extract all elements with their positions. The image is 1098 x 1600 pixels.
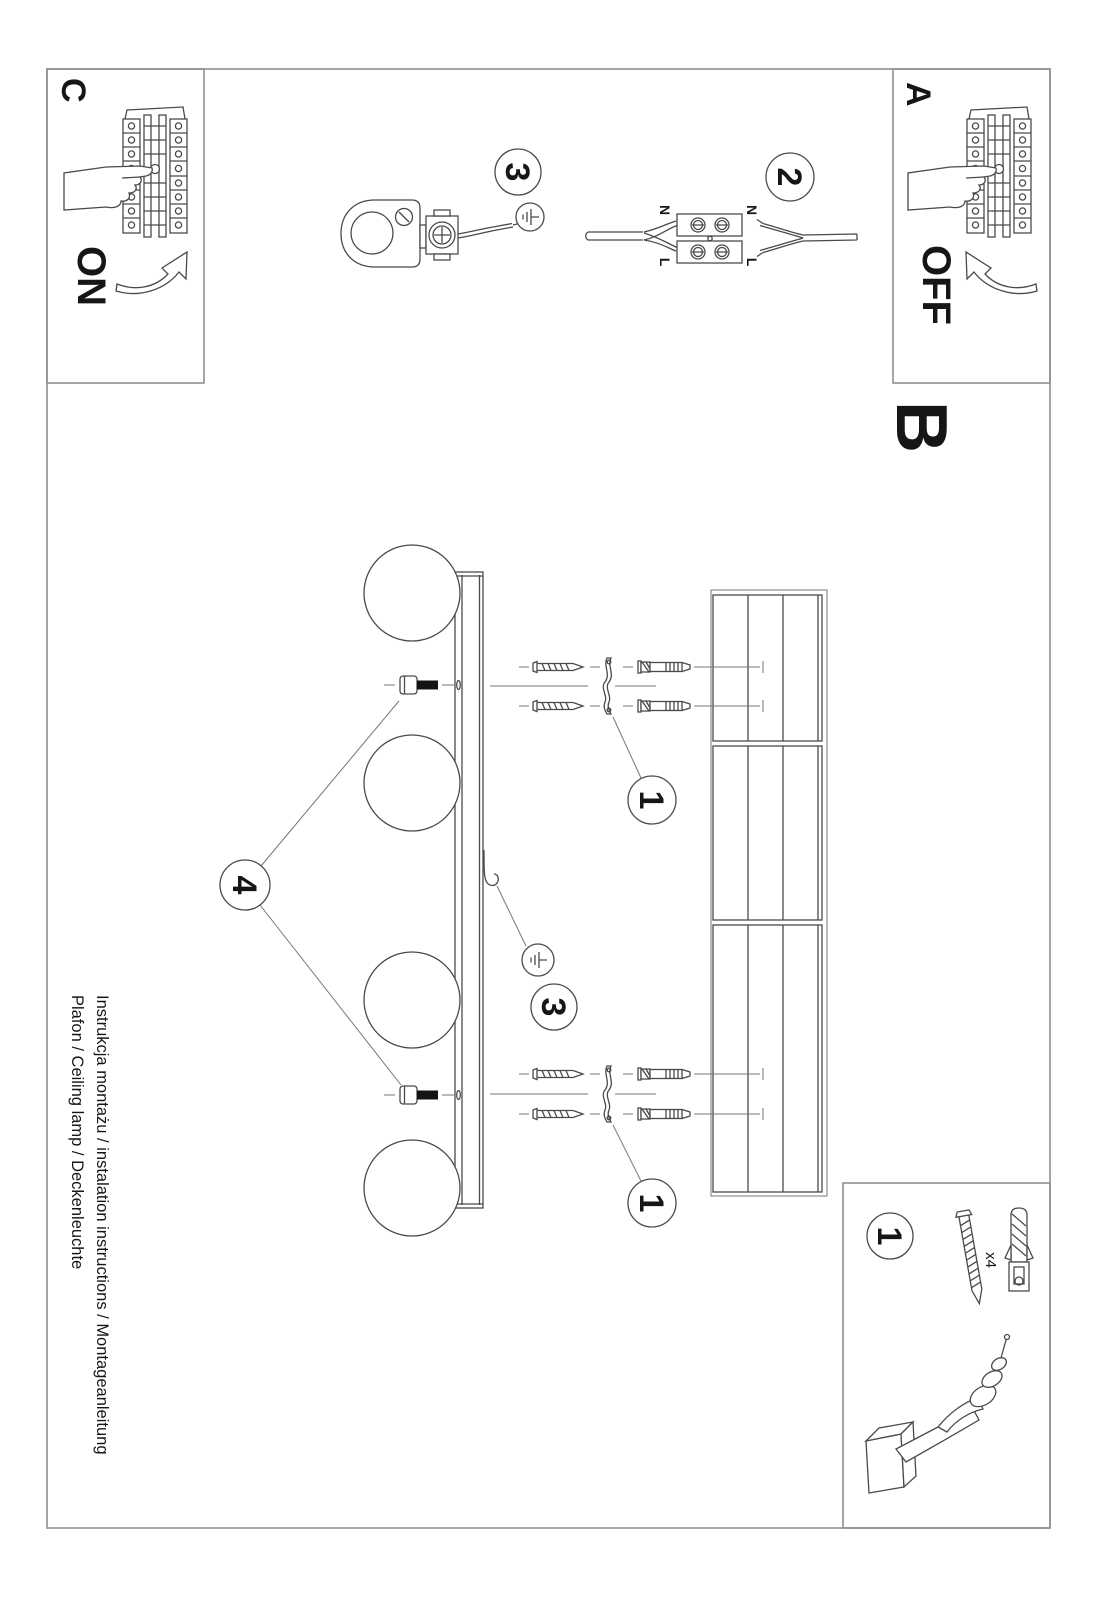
arrow-on-icon — [116, 252, 187, 294]
cable-right — [803, 234, 857, 241]
wire-n-left: N — [657, 205, 673, 215]
wood-screw-icon — [533, 1109, 583, 1120]
instruction-sheet: C A B ON OFF 2 3 3 4 1 1 1 N N L L x4 In… — [0, 0, 1098, 1600]
wire-l-right: L — [744, 258, 760, 267]
step3-number-top: 3 — [498, 163, 536, 182]
terminal-block-n — [677, 214, 742, 236]
step4-number: 4 — [225, 876, 263, 895]
ground-symbol-icon — [522, 944, 554, 976]
ground-symbol-icon — [516, 203, 544, 231]
arrow-off-icon — [966, 252, 1037, 294]
page-border — [47, 69, 1050, 1528]
screw-quantity-label: x4 — [982, 1252, 999, 1268]
tools-panel — [866, 1208, 1033, 1493]
ground-hook-icon — [484, 850, 498, 886]
wire-n-right: N — [744, 205, 760, 215]
cable-left — [586, 232, 643, 240]
globe-3 — [364, 952, 460, 1048]
wood-screw-icon — [533, 1069, 583, 1080]
step1-number-top: 1 — [632, 791, 670, 810]
drill-icon — [866, 1335, 1010, 1494]
wall-plug-icon — [638, 700, 690, 712]
center-lines — [384, 661, 763, 1120]
wall-plug-icon — [638, 1068, 690, 1080]
globe-2 — [364, 735, 460, 831]
wood-screw-icon — [533, 701, 583, 712]
wire-l-left: L — [657, 258, 673, 267]
ceiling-planks — [711, 590, 827, 1196]
terminal-block-l — [677, 241, 742, 263]
wall-plug-vertical-icon — [1005, 1208, 1033, 1291]
off-label: OFF — [914, 245, 958, 325]
globe-screw-icon — [400, 676, 438, 694]
step1-number-tools: 1 — [870, 1227, 908, 1246]
globe-screw-icon — [400, 1086, 438, 1104]
mounting-bracket-icon — [603, 658, 611, 714]
wood-screw-icon — [533, 662, 583, 673]
wall-plug-icon — [638, 661, 690, 673]
step2-terminal-wiring — [586, 153, 857, 263]
step1-number-bottom: 1 — [632, 1194, 670, 1213]
step2-number: 2 — [770, 168, 808, 187]
section-a-label: A — [899, 82, 937, 107]
document-title-line1: Instrukcja montażu / instalation instruc… — [93, 995, 111, 1455]
section-b-label: B — [881, 401, 961, 453]
ceiling-lamp-bar — [455, 572, 498, 1208]
section-c-label: C — [54, 78, 92, 103]
on-label: ON — [69, 246, 113, 306]
ground-wire — [458, 223, 521, 238]
mounting-bracket-icon — [603, 1066, 611, 1122]
document-title-line2: Plafon / Ceiling lamp / Deckenleuchte — [68, 995, 86, 1269]
lamp-globes — [364, 545, 460, 1236]
globe-1 — [364, 545, 460, 641]
panel-a-box — [893, 69, 1050, 383]
globe-4 — [364, 1140, 460, 1236]
step3-number-mid: 3 — [534, 998, 572, 1017]
wall-plug-icon — [638, 1108, 690, 1120]
